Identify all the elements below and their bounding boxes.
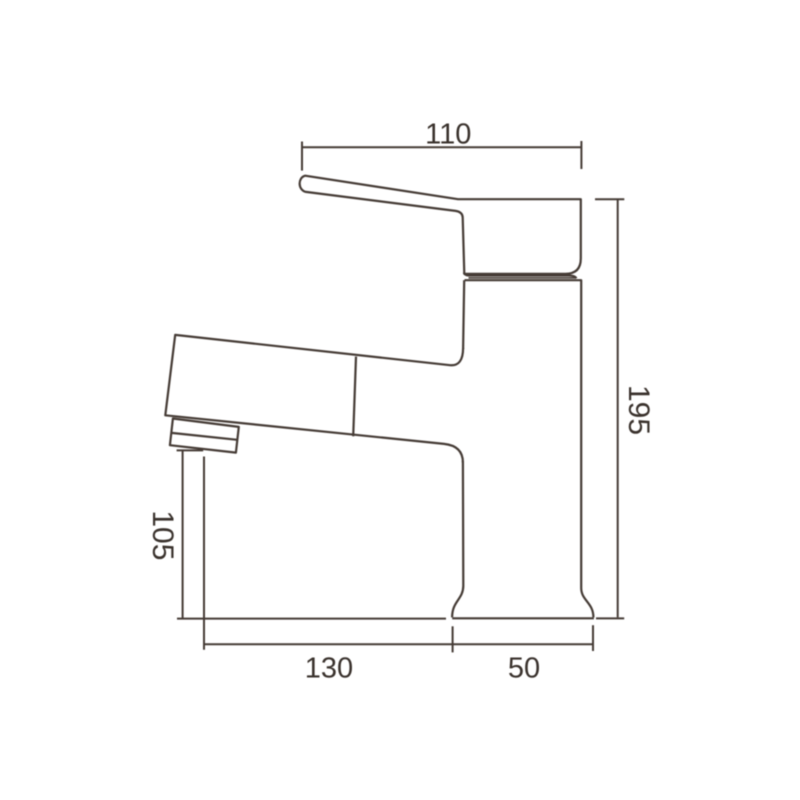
svg-text:130: 130 bbox=[305, 653, 353, 685]
svg-text:105: 105 bbox=[146, 510, 179, 560]
svg-text:50: 50 bbox=[508, 652, 540, 684]
svg-text:195: 195 bbox=[622, 385, 655, 435]
svg-text:110: 110 bbox=[425, 118, 471, 150]
